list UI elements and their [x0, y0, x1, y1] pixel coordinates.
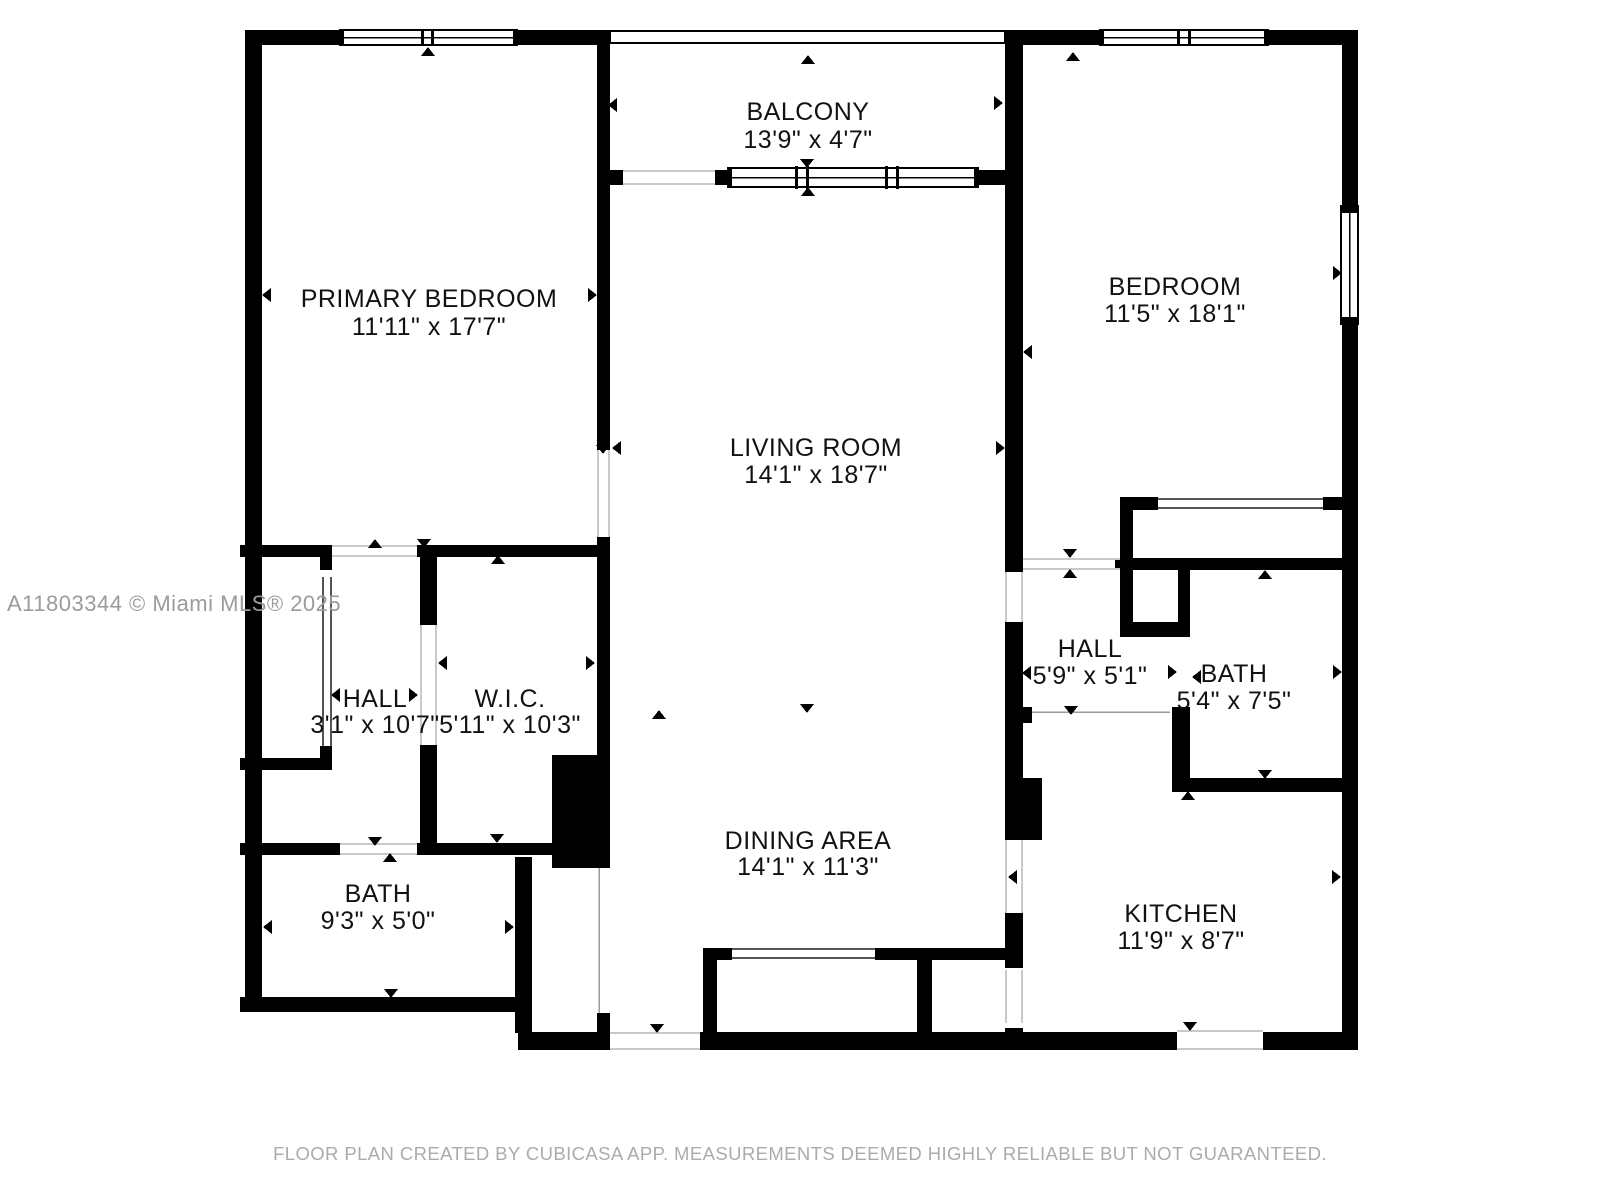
room-dims: 11'5" x 18'1" — [1104, 300, 1246, 328]
room-name: HALL — [343, 685, 408, 713]
room-dims: 5'9" x 5'1" — [1033, 662, 1148, 690]
room-label-primary-bedroom: PRIMARY BEDROOM 11'11" x 17'7" — [301, 285, 558, 341]
measure-arrow-icon — [1023, 345, 1032, 359]
room-name: W.I.C. — [474, 685, 545, 713]
room-label-kitchen: KITCHEN 11'9" x 8'7" — [1117, 900, 1244, 955]
balcony-railing — [610, 31, 1005, 43]
measure-arrow-icon — [1168, 665, 1177, 679]
measure-arrow-icon — [996, 441, 1005, 455]
room-name: BALCONY — [747, 98, 870, 126]
room-label-bath-right: BATH 5'4" x 7'5" — [1177, 660, 1292, 715]
measure-arrow-icon — [1066, 52, 1080, 61]
room-label-wic: W.I.C. 5'11" x 10'3" — [439, 685, 581, 739]
measure-arrow-icon — [800, 704, 814, 713]
window-primary-top — [340, 29, 517, 46]
measure-arrow-icon — [800, 159, 814, 168]
measure-arrow-icon — [262, 288, 271, 302]
room-dims: 11'11" x 17'7" — [352, 313, 506, 341]
measure-arrow-icon — [1022, 666, 1031, 680]
room-name: DINING AREA — [725, 827, 892, 855]
mls-watermark: A11803344 © Miami MLS® 2025 — [7, 591, 341, 616]
room-label-hall-right: HALL 5'9" x 5'1" — [1033, 635, 1148, 690]
window-bedroom-top — [1100, 29, 1268, 46]
room-name: LIVING ROOM — [730, 434, 902, 462]
measure-arrow-icon — [650, 1024, 664, 1033]
room-dims: 5'11" x 10'3" — [439, 711, 581, 739]
measure-arrow-icon — [1181, 791, 1195, 800]
room-label-living-room: LIVING ROOM 14'1" x 18'7" — [730, 434, 902, 489]
room-dims: 5'4" x 7'5" — [1177, 687, 1292, 715]
measure-arrow-icon — [1258, 570, 1272, 579]
room-label-bath-left: BATH 9'3" x 5'0" — [321, 880, 436, 935]
window-bedroom-right — [1341, 206, 1358, 324]
room-label-dining-area: DINING AREA 14'1" x 11'3" — [725, 827, 892, 881]
room-name: BEDROOM — [1109, 273, 1242, 301]
floor-plan-page: PRIMARY BEDROOM 11'11" x 17'7" BALCONY 1… — [0, 0, 1600, 1200]
measure-arrow-icon — [331, 688, 340, 702]
room-label-balcony: BALCONY 13'9" x 4'7" — [743, 98, 872, 154]
measure-arrow-icon — [1063, 569, 1077, 578]
floor-plan-image: PRIMARY BEDROOM 11'11" x 17'7" BALCONY 1… — [0, 0, 1600, 1200]
measure-arrow-icon — [1258, 770, 1272, 779]
measure-arrow-icon — [421, 47, 435, 56]
measure-arrow-icon — [994, 96, 1003, 110]
room-dims: 13'9" x 4'7" — [743, 126, 872, 154]
measure-arrow-icon — [368, 539, 382, 548]
measure-arrow-icon — [588, 288, 597, 302]
measure-arrow-icon — [409, 688, 418, 702]
room-name: BATH — [1201, 660, 1268, 688]
measure-arrow-icon — [801, 55, 815, 64]
room-name: PRIMARY BEDROOM — [301, 285, 558, 313]
room-name: HALL — [1058, 635, 1123, 663]
room-dims: 9'3" x 5'0" — [321, 907, 436, 935]
measure-arrow-icon — [505, 920, 514, 934]
measure-arrow-icon — [1064, 706, 1078, 715]
room-label-bedroom: BEDROOM 11'5" x 18'1" — [1104, 273, 1246, 328]
measure-arrow-icon — [384, 989, 398, 998]
room-labels: PRIMARY BEDROOM 11'11" x 17'7" BALCONY 1… — [301, 98, 1292, 955]
room-dims: 11'9" x 8'7" — [1117, 927, 1244, 955]
measure-arrow-icon — [1008, 870, 1017, 884]
measure-arrow-icon — [1332, 870, 1341, 884]
room-name: BATH — [345, 880, 412, 908]
room-name: KITCHEN — [1124, 900, 1237, 928]
measure-arrow-icon — [801, 187, 815, 196]
measure-arrow-icon — [438, 656, 447, 670]
room-separator-lines — [599, 712, 1170, 1013]
measure-arrow-icon — [1183, 1022, 1197, 1031]
measure-arrow-icon — [1063, 549, 1077, 558]
measure-arrow-icon — [652, 710, 666, 719]
room-dims: 14'1" x 11'3" — [737, 853, 879, 881]
room-dims: 3'1" x 10'7" — [310, 711, 439, 739]
measurement-arrows — [262, 47, 1342, 1033]
measure-arrow-icon — [1333, 665, 1342, 679]
measure-arrow-icon — [586, 656, 595, 670]
measure-arrow-icon — [263, 920, 272, 934]
footer-disclaimer: FLOOR PLAN CREATED BY CUBICASA APP. MEAS… — [273, 1143, 1327, 1164]
measure-arrow-icon — [490, 834, 504, 843]
room-dims: 14'1" x 18'7" — [744, 461, 888, 489]
window-balcony-slider — [728, 166, 978, 189]
measure-arrow-icon — [612, 441, 621, 455]
